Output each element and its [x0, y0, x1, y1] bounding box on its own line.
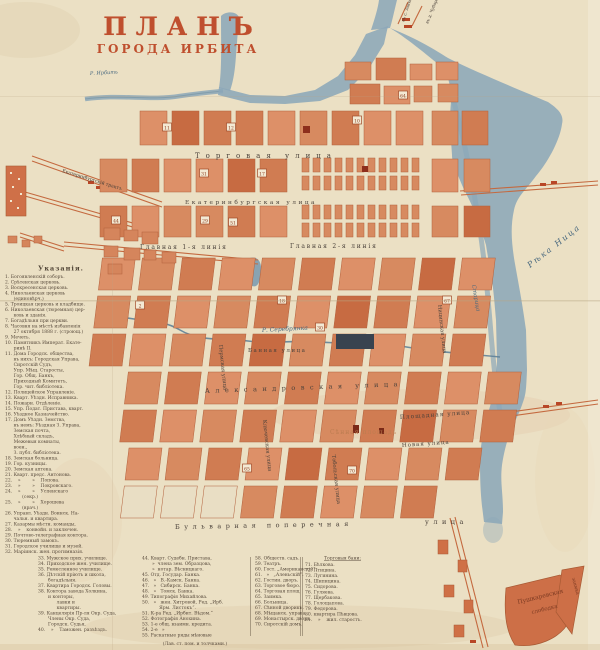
legend-divider-1: [250, 557, 251, 636]
svg-text:2: 2: [139, 303, 142, 309]
svg-text:51: 51: [230, 220, 236, 226]
cemetery-plot: [6, 166, 26, 216]
svg-text:17: 17: [259, 171, 265, 177]
label-bannaya: Банная улица: [248, 348, 306, 354]
legend-bottom-col2: 44. Кварт. Судебн. Пристава, » члена зем…: [142, 556, 248, 647]
label-river-irbit: Р. Ирбить: [89, 69, 118, 78]
label-bulvarnaya: Бульварная поперечная: [175, 520, 353, 531]
svg-text:44: 44: [113, 218, 119, 224]
legend-bottom: 33. Мужское прих. училище.34. Приходское…: [38, 556, 383, 648]
legend-heading: Указанія.: [5, 266, 117, 272]
svg-text:29: 29: [202, 218, 208, 224]
legend-item: 70. Сиротскій домъ.: [255, 622, 299, 628]
blocks-upper-town: [100, 58, 490, 237]
label-glavnaya2: Главная 2-я линія: [290, 243, 378, 250]
label-glavnaya1: Главная 1-я линія: [140, 244, 228, 251]
label-sennaya: Сѣнная площадь: [330, 429, 397, 436]
river-north-exit: [371, 0, 397, 30]
label-serebryanka: Р. Серебрянка: [261, 325, 309, 334]
label-torgovaya: Торговая улица: [195, 152, 337, 160]
legend-item: 55. Раскатные ряды мѣновые: [142, 633, 248, 639]
legend-col4-header: Торговыя бани:: [305, 556, 380, 562]
legend-divider-2: [300, 557, 303, 636]
label-bulvarnaya-ulitsa: улица: [425, 518, 468, 526]
legend-bottom-col1: 33. Мужское прих. училище.34. Приходское…: [38, 556, 138, 633]
map-title-line2: ГОРОДА ИРБИТА: [88, 42, 268, 56]
svg-text:12: 12: [228, 125, 234, 131]
svg-text:10: 10: [354, 118, 360, 124]
map-title: ПЛАНЪ ГОРОДА ИРБИТА: [88, 12, 268, 56]
svg-text:30: 30: [317, 325, 323, 331]
svg-text:65: 65: [244, 466, 250, 472]
label-road-ne2: въ д. Чубарову: [424, 0, 441, 24]
legend-left-items: 1. Богоявленскій соборъ.2. Срѣтенская це…: [5, 275, 117, 556]
label-nitsa: Рѣка Ница: [525, 222, 583, 270]
svg-text:70: 70: [349, 468, 355, 474]
legend-item: 40. » Таможен. разъѣздъ.: [38, 628, 138, 634]
legend-left: Указанія. 1. Богоявленскій соборъ.2. Срѣ…: [5, 266, 117, 558]
legend-bottom-col3: 58. Обществ. садъ.59. Театръ.60. Гост. „…: [255, 556, 299, 628]
legend-item: 81. » жил. старостъ.: [305, 618, 380, 624]
svg-text:11: 11: [164, 125, 170, 131]
church-block-1: [303, 126, 310, 133]
map-title-line1: ПЛАНЪ: [88, 12, 268, 41]
legend-item: 32. Маріинск. жен. прогимназія.: [5, 550, 117, 556]
legend-bottom-col4: Торговыя бани: 71. Бѣлкова.72. Птицина.7…: [305, 556, 380, 623]
mill-building: [336, 334, 374, 349]
label-ekaterinburgskaya: Екатеринбургская улица: [185, 199, 317, 206]
river-fade-tail: [483, 517, 503, 543]
svg-text:31: 31: [201, 171, 207, 177]
legend-note: (Лав. ст. пом. и толчками.): [142, 642, 248, 648]
church-block-2: [362, 166, 368, 172]
map-sheet: 11121064311729445130186770652 Р. Ирбить …: [0, 0, 600, 650]
